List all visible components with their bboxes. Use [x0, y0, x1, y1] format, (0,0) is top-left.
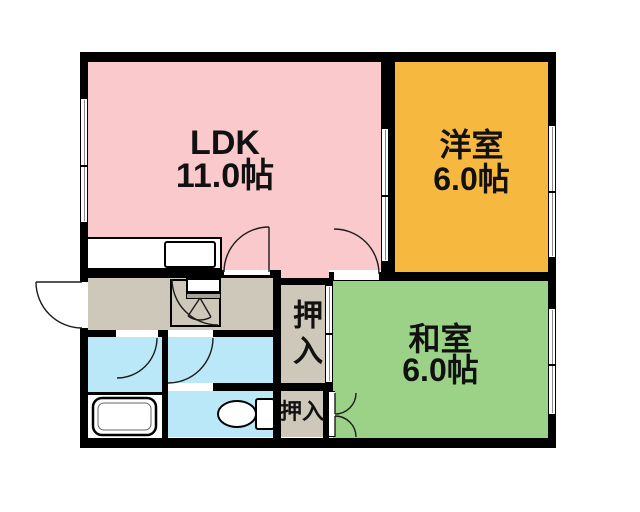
label-western: 洋室 6.0帖: [395, 128, 548, 196]
western-name: 洋室: [439, 127, 503, 163]
sliding-door-closet-large-icon: [325, 285, 333, 383]
opening-toilet: [168, 383, 213, 391]
hallway-cabinet-shelf: [186, 293, 221, 299]
label-ldk: LDK 11.0帖: [80, 127, 370, 193]
opening-ldk-door: [224, 270, 270, 275]
label-closet-small: 押入: [277, 400, 327, 424]
washroom-left: [88, 337, 162, 392]
label-japanese: 和室 6.0帖: [333, 324, 548, 386]
ldk-size: 11.0帖: [80, 160, 370, 193]
wall-closet-top: [281, 278, 333, 285]
wall-toilet-top: [213, 383, 273, 391]
sliding-door-ldk-western-icon: [381, 128, 389, 262]
opening-washroom-left: [116, 330, 158, 337]
wall-outer-bottom: [80, 438, 556, 448]
bathroom: [88, 395, 162, 438]
window-japanese-right-icon: [548, 308, 556, 415]
hallway-cabinet-counter: [186, 278, 221, 293]
label-closet-large: 押入: [286, 293, 322, 377]
opening-japanese-door: [334, 272, 379, 280]
window-western-right-icon: [548, 125, 556, 258]
wall-outer-top: [80, 52, 556, 62]
opening-washroom-right: [168, 330, 213, 337]
japanese-size: 6.0帖: [333, 355, 548, 386]
washroom-right: [168, 337, 273, 383]
room-ldk-strip: [281, 270, 329, 278]
toilet-room: [168, 391, 273, 437]
entrance-door-icon: [36, 282, 82, 328]
opening-entrance: [80, 282, 88, 328]
western-size: 6.0帖: [395, 162, 548, 196]
wall-bath-line: [88, 392, 162, 395]
floor-plan: LDK 11.0帖 洋室 6.0帖 和室 6.0帖 押入 押入: [0, 0, 640, 512]
kitchen-counter-icon: [88, 237, 222, 270]
opening-closet-small: [329, 391, 335, 437]
